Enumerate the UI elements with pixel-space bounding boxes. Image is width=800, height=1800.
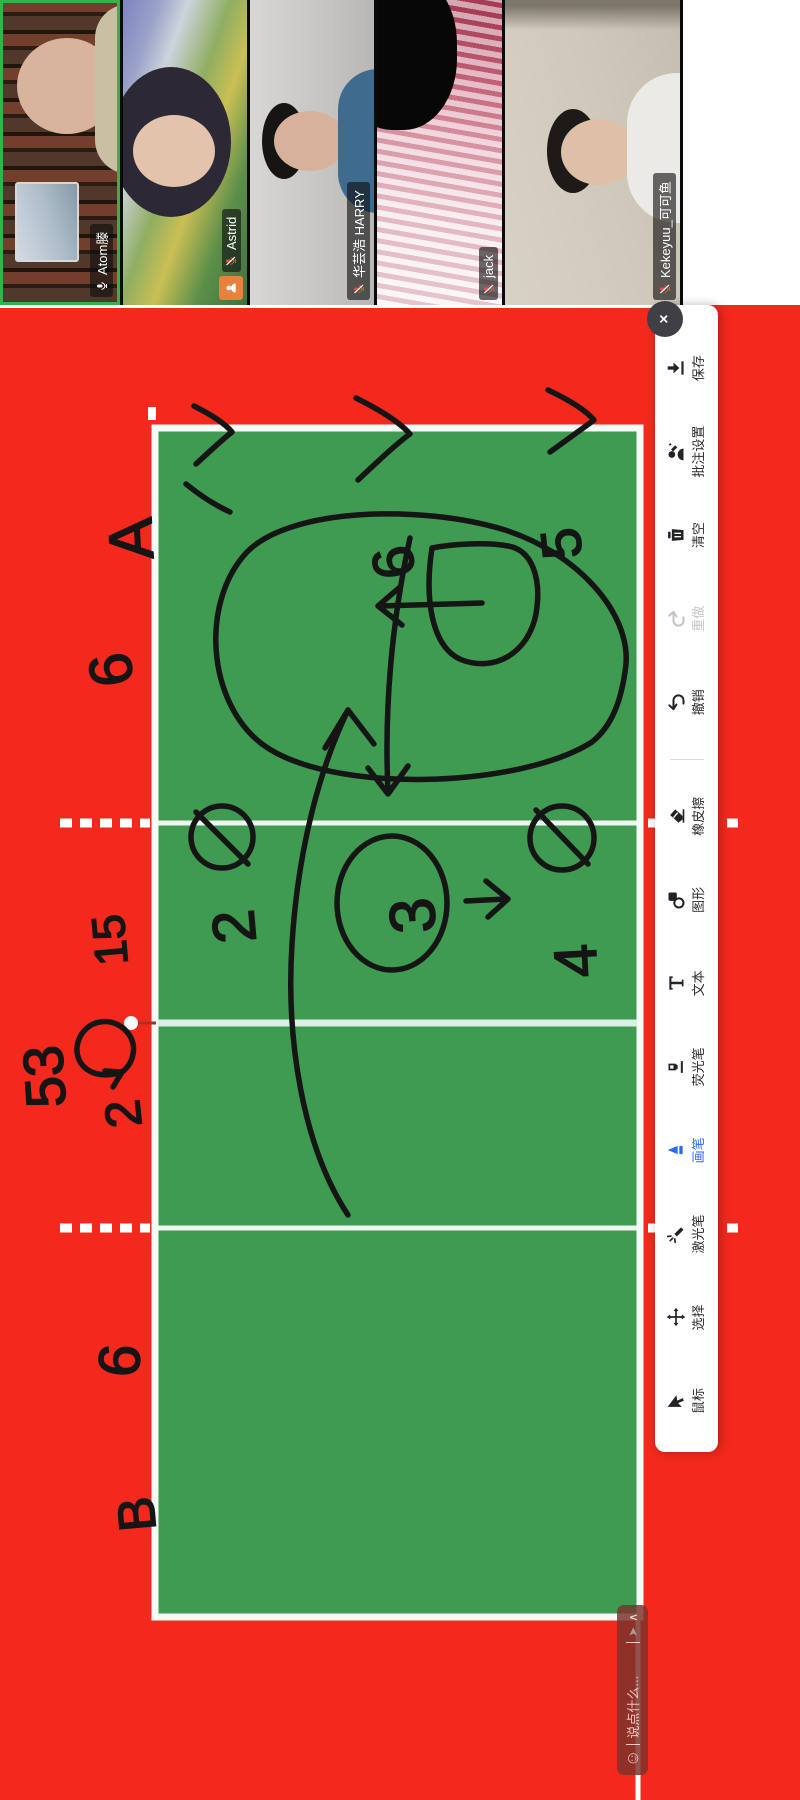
chat-placeholder: 说点什么... — [623, 1648, 642, 1739]
participant-face — [274, 111, 346, 171]
label-2: 2 — [199, 907, 269, 946]
mouse-cursor-icon — [666, 1391, 686, 1411]
tool-laser[interactable]: 激光笔 — [666, 1205, 707, 1263]
participant-face — [133, 115, 215, 187]
nameplate: 华芸浩 HARRY — [347, 182, 370, 300]
tool-label: 图形 — [688, 887, 707, 913]
annotator-settings-icon — [666, 442, 686, 462]
trash-icon — [666, 525, 686, 545]
tool-label: 鼠标 — [688, 1388, 707, 1414]
move-icon — [666, 1307, 686, 1327]
nameplate: jack — [479, 247, 498, 300]
nameplate: Astrid — [222, 209, 241, 272]
emoji-icon[interactable]: ☺ — [624, 1750, 641, 1767]
label-5: 5 — [528, 525, 594, 563]
tool-eraser[interactable]: 橡皮擦 — [666, 787, 707, 845]
undo-icon — [666, 692, 686, 712]
participant-name: Astrid — [224, 217, 239, 250]
video-tile-harry[interactable]: 华芸浩 HARRY — [250, 0, 374, 305]
tool-label: 清空 — [688, 522, 707, 548]
mic-muted-icon — [352, 283, 366, 295]
label-53: 53 — [11, 1043, 78, 1110]
tool-shape[interactable]: 图形 — [666, 871, 707, 929]
participant-name: Atom滕 — [92, 232, 111, 275]
ceiling-edge — [505, 0, 680, 30]
tool-pen[interactable]: 画笔 — [666, 1121, 707, 1179]
laser-pointer-icon — [666, 1224, 686, 1244]
selection-handle — [148, 407, 156, 420]
text-cursor — [626, 1744, 640, 1745]
participant-face — [561, 119, 637, 185]
annotation-toolbar: × 鼠标 选择 激光笔 画笔 荧光笔 文本 图形 — [655, 305, 718, 1452]
video-tile-kekeyuu[interactable]: Kekeyuu_可可鱼 — [505, 0, 680, 305]
eraser-icon — [666, 806, 686, 826]
tool-undo[interactable]: 撤销 — [666, 673, 707, 731]
toolbar-divider — [670, 759, 704, 760]
video-tile-jack[interactable]: jack — [377, 0, 502, 305]
chevron-collapse-icon[interactable]: ∧ — [627, 1613, 639, 1622]
video-tile-atom[interactable]: Atom滕 — [0, 0, 120, 305]
text-icon — [666, 973, 686, 993]
tool-highlighter[interactable]: 荧光笔 — [666, 1038, 707, 1096]
video-tile-astrid[interactable]: Astrid — [123, 0, 247, 305]
shapes-icon — [666, 890, 686, 910]
tool-label: 橡皮擦 — [688, 797, 707, 836]
rotation-loop-arrow — [77, 1022, 134, 1087]
tool-text[interactable]: 文本 — [666, 954, 707, 1012]
nameplate: Kekeyuu_可可鱼 — [653, 173, 676, 300]
label-team-a: A — [96, 516, 167, 562]
tool-redo[interactable]: 重做 — [666, 590, 707, 648]
tool-label: 激光笔 — [688, 1214, 707, 1253]
mic-on-icon — [95, 280, 109, 292]
participant-name: jack — [481, 255, 496, 278]
screenshot-root: 53 2 15 6 A B 6 2 3 4 6 5 — [0, 0, 800, 1800]
tool-annotation-settings[interactable]: 批注设置 — [666, 423, 707, 481]
tool-clear[interactable]: 清空 — [666, 506, 707, 564]
tool-label: 文本 — [688, 970, 707, 996]
send-icon[interactable]: ➤ — [627, 1627, 639, 1637]
participant-shoulders — [95, 4, 120, 174]
host-badge — [219, 276, 243, 300]
save-download-icon — [666, 358, 686, 378]
mic-muted-icon — [482, 283, 496, 295]
label-15: 15 — [81, 912, 137, 968]
close-icon: × — [656, 314, 674, 323]
tool-label: 荧光笔 — [688, 1047, 707, 1086]
video-tile-list: Atom滕 — [0, 0, 683, 305]
participant-sidebar: Atom滕 — [0, 0, 800, 305]
redo-icon — [666, 609, 686, 629]
participant-name: Kekeyuu_可可鱼 — [655, 181, 674, 278]
label-team-b: B — [107, 1494, 168, 1534]
divider-bar — [626, 1642, 640, 1643]
tool-label: 批注设置 — [688, 426, 707, 478]
sidebar-divider — [0, 305, 683, 308]
highlighter-icon — [666, 1057, 686, 1077]
tool-save[interactable]: 保存 — [666, 339, 707, 397]
tool-select[interactable]: 选择 — [666, 1288, 707, 1346]
chat-input-bar[interactable]: ☺ 说点什么... ➤ ∧ — [617, 1605, 648, 1775]
room-inset-video — [15, 182, 79, 262]
person-icon — [224, 281, 238, 295]
participant-name: 华芸浩 HARRY — [349, 190, 368, 278]
close-toolbar-button[interactable]: × — [647, 301, 683, 337]
label-2-rotation: 2 — [94, 1097, 153, 1131]
tool-label: 选择 — [688, 1304, 707, 1330]
label-4: 4 — [541, 942, 610, 979]
mic-muted-icon — [658, 283, 672, 295]
label-6-left: 6 — [86, 1342, 153, 1379]
tool-mouse[interactable]: 鼠标 — [666, 1372, 707, 1430]
label-6-top: 6 — [75, 649, 146, 691]
pen-icon — [666, 1140, 686, 1160]
mic-muted-icon — [224, 255, 238, 267]
tool-label: 重做 — [688, 606, 707, 632]
rotated-meeting-screen: 53 2 15 6 A B 6 2 3 4 6 5 — [0, 0, 800, 1800]
tool-label: 保存 — [688, 355, 707, 381]
tool-label: 画笔 — [688, 1137, 707, 1163]
tool-label: 撤销 — [688, 689, 707, 715]
nameplate: Atom滕 — [90, 224, 113, 297]
label-3: 3 — [375, 895, 449, 936]
